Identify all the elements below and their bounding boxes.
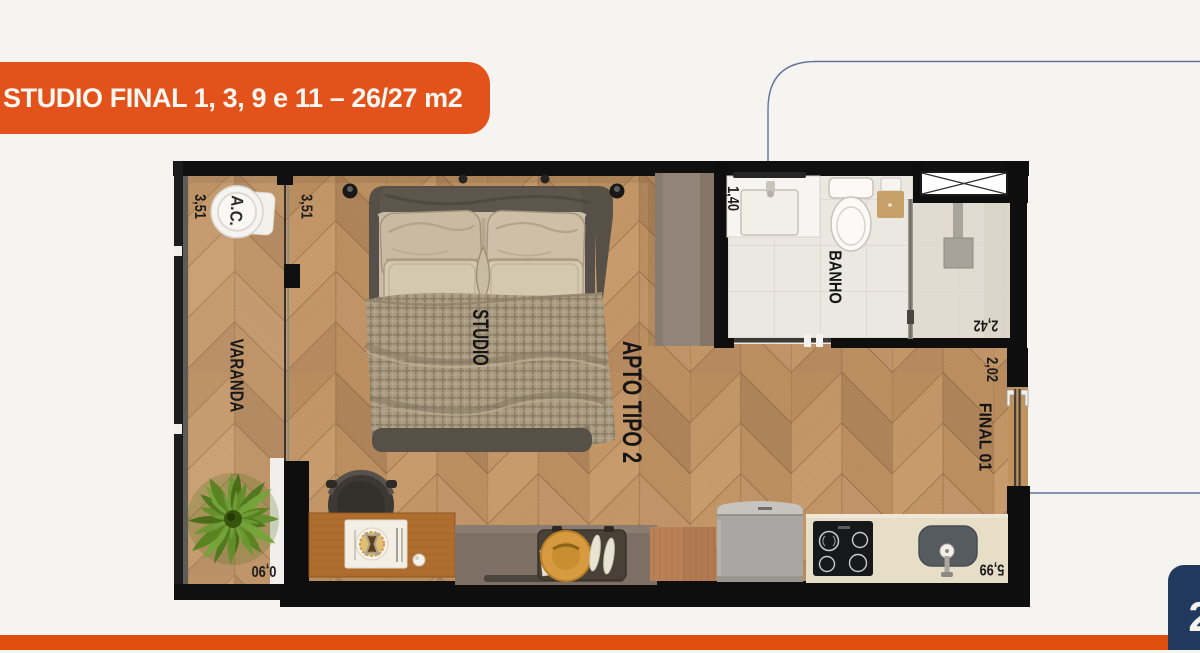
svg-text:STUDIO: STUDIO [468, 309, 493, 365]
svg-text:APTO TIPO 2: APTO TIPO 2 [616, 341, 646, 463]
svg-text:2,42: 2,42 [974, 316, 999, 334]
svg-text:BANHO: BANHO [825, 250, 845, 304]
svg-text:VARANDA: VARANDA [226, 339, 247, 413]
svg-text:3,51: 3,51 [191, 194, 209, 219]
svg-text:3,51: 3,51 [297, 194, 315, 219]
svg-text:1,40: 1,40 [724, 186, 742, 211]
svg-text:2,02: 2,02 [983, 357, 1001, 382]
svg-text:A.C.: A.C. [226, 195, 247, 227]
svg-text:5,99: 5,99 [980, 560, 1005, 578]
svg-text:FINAL 01: FINAL 01 [975, 403, 995, 471]
svg-text:0,90: 0,90 [252, 562, 277, 580]
